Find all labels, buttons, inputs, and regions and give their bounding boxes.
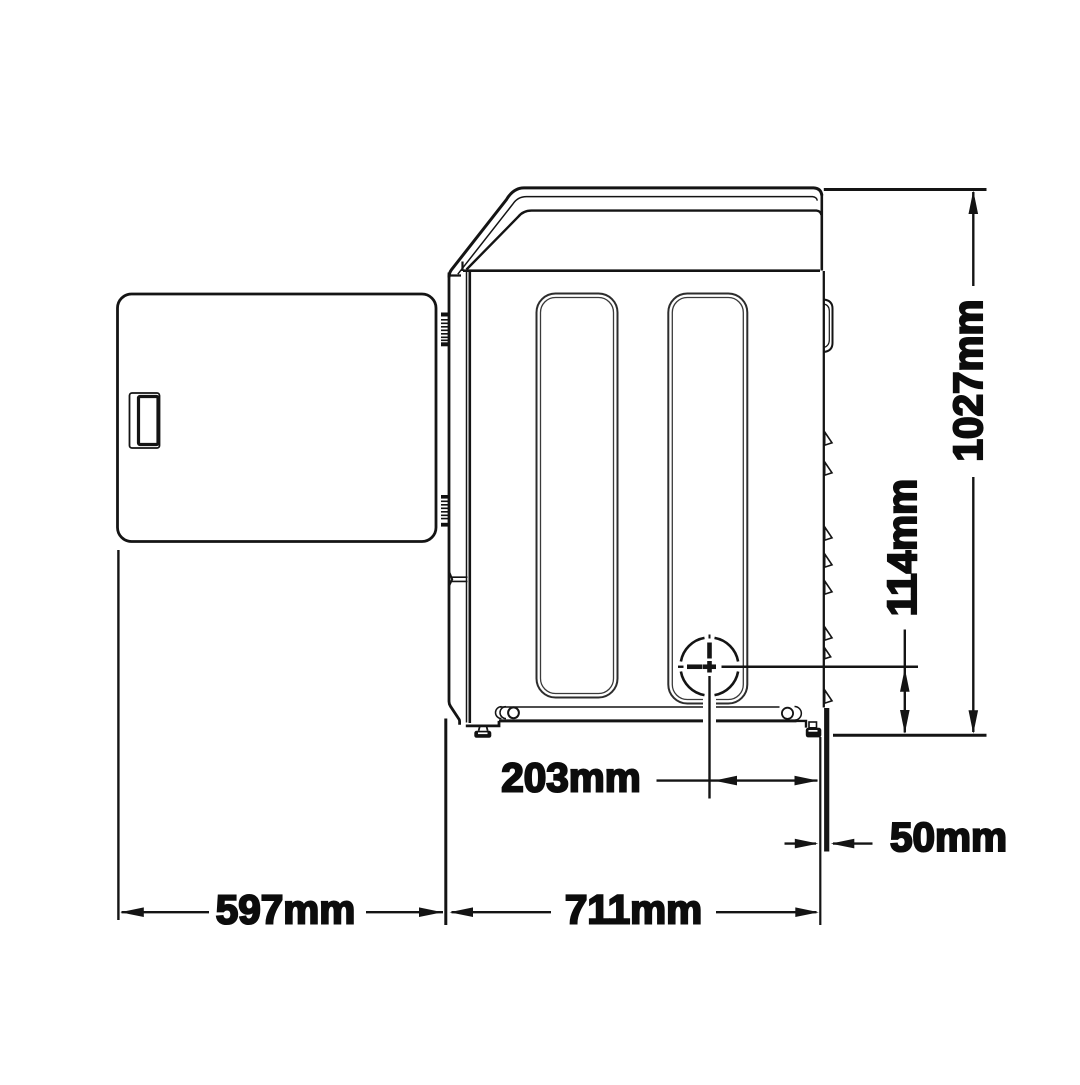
svg-text:50mm: 50mm (890, 814, 1007, 860)
svg-text:203mm: 203mm (501, 755, 641, 801)
svg-text:1027mm: 1027mm (945, 299, 991, 461)
svg-text:114mm: 114mm (879, 479, 925, 616)
svg-text:597mm: 597mm (216, 887, 356, 933)
svg-text:711mm: 711mm (565, 887, 702, 933)
